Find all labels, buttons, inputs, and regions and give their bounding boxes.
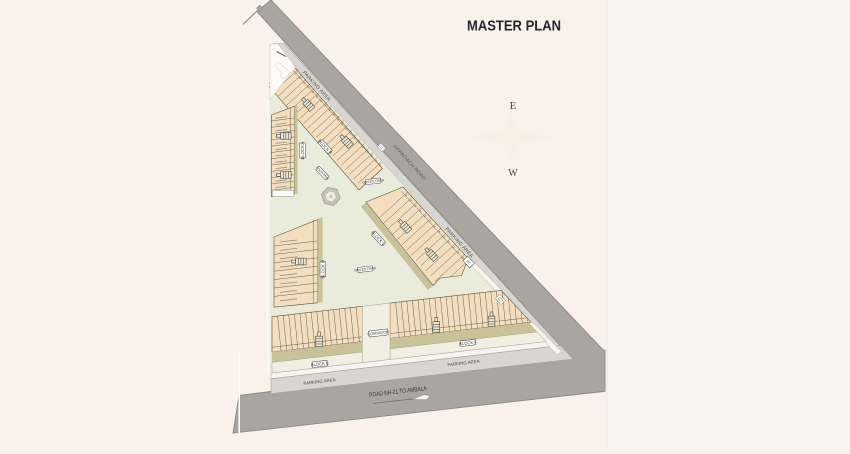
svg-text:BLOCK D: BLOCK D bbox=[320, 260, 325, 278]
svg-text:W: W bbox=[508, 168, 518, 179]
svg-text:MASTER PLAN: MASTER PLAN bbox=[467, 18, 561, 35]
svg-text:BLOCK A: BLOCK A bbox=[300, 141, 305, 159]
svg-text:E: E bbox=[510, 100, 517, 112]
